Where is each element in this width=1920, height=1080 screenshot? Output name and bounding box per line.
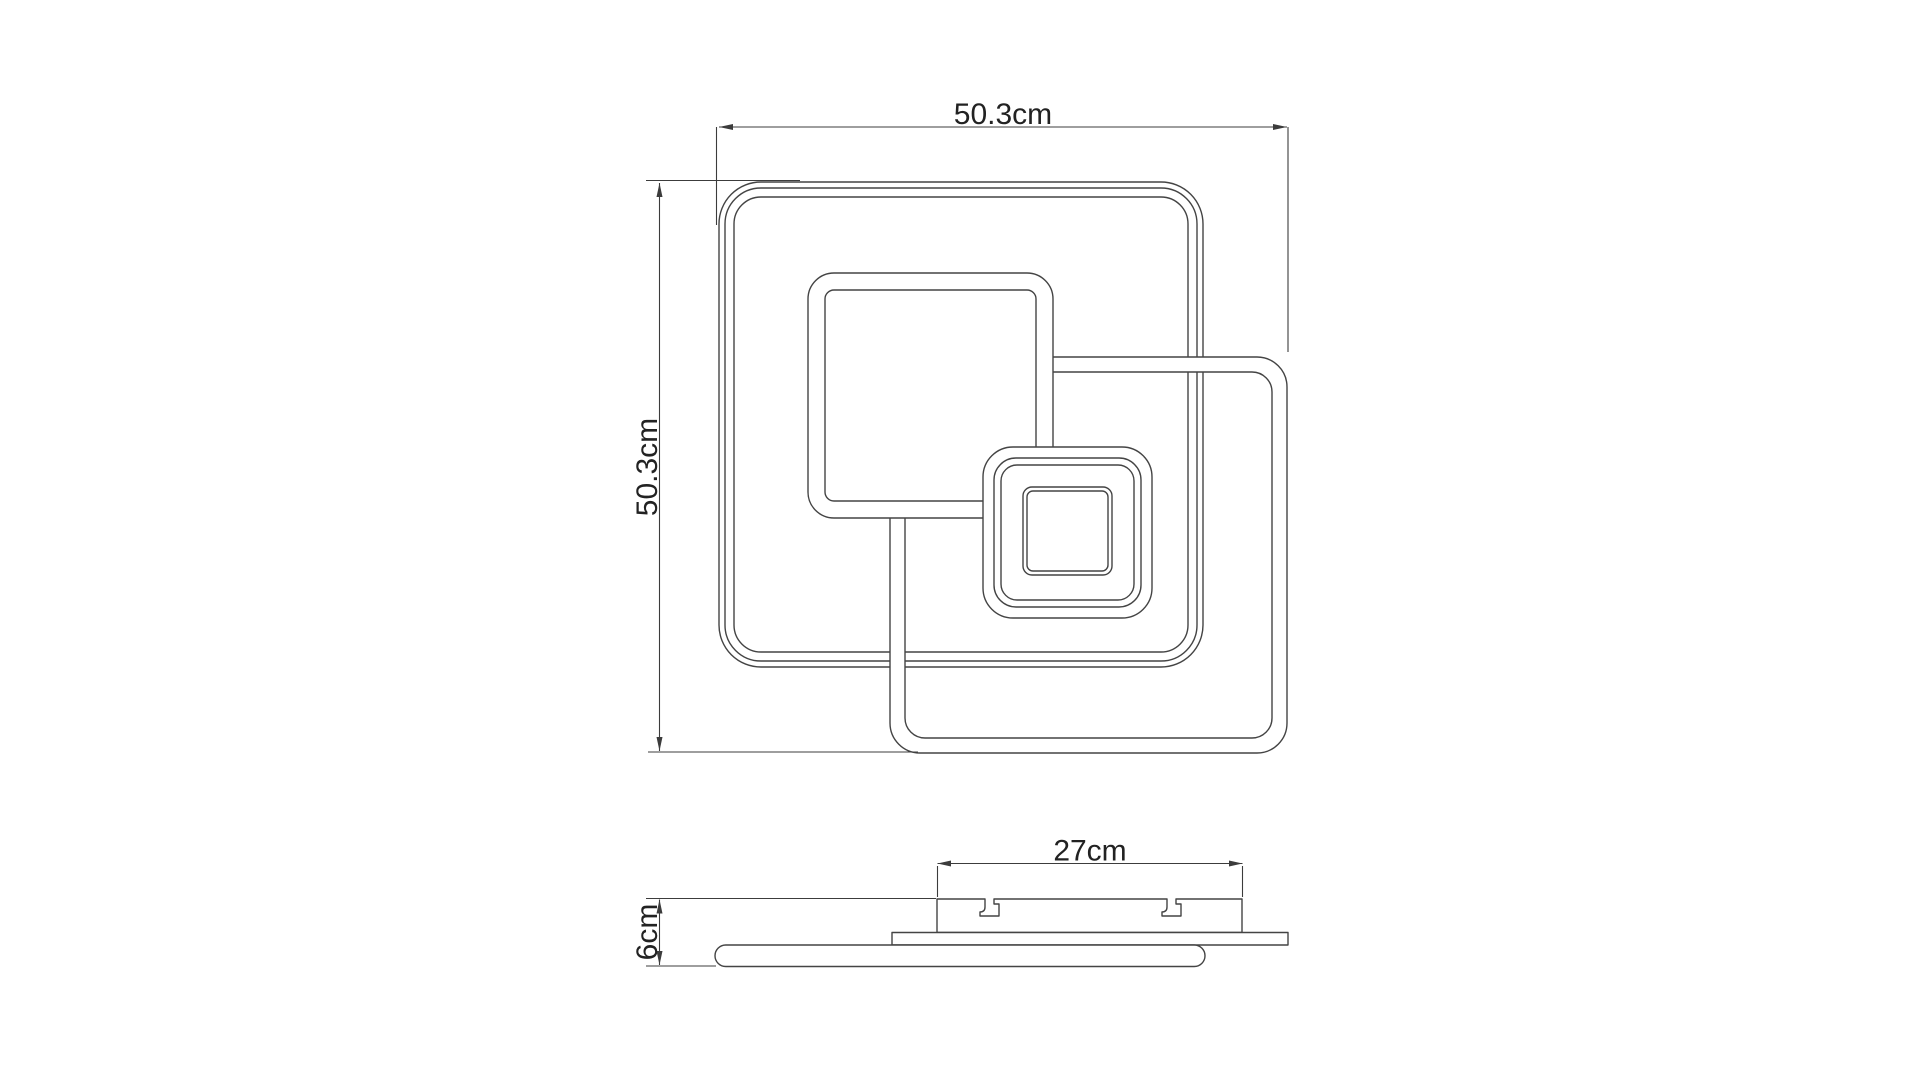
profile-dim-label: 6cm [631, 904, 664, 961]
small-frame-outer-line [983, 447, 1152, 618]
side-view [715, 899, 1288, 967]
canopy-profile [937, 899, 1242, 933]
plate-dim-label: 27cm [1053, 835, 1126, 868]
height-dim-label: 50.3cm [631, 418, 664, 516]
lamp-technical-drawing: 50.3cm 50.3cm 27cm 6cm [0, 0, 1920, 1080]
dimensions: 50.3cm 50.3cm 27cm 6cm [631, 98, 1288, 966]
arrow-down-icon [657, 737, 663, 751]
arrow-right-icon [1273, 124, 1287, 130]
arrow-left-icon [938, 861, 952, 867]
arrow-right-icon [1229, 861, 1243, 867]
width-dim-label: 50.3cm [954, 98, 1052, 131]
mount-plate-profile [892, 933, 1288, 946]
top-view [719, 182, 1287, 753]
plate-width-dimension: 27cm [938, 835, 1243, 898]
lamp-panel-profile [715, 945, 1205, 967]
arrow-left-icon [719, 124, 733, 130]
arrow-up-icon [657, 183, 663, 197]
drawing-canvas: 50.3cm 50.3cm 27cm 6cm [0, 0, 1920, 1080]
small-frame [983, 447, 1152, 618]
